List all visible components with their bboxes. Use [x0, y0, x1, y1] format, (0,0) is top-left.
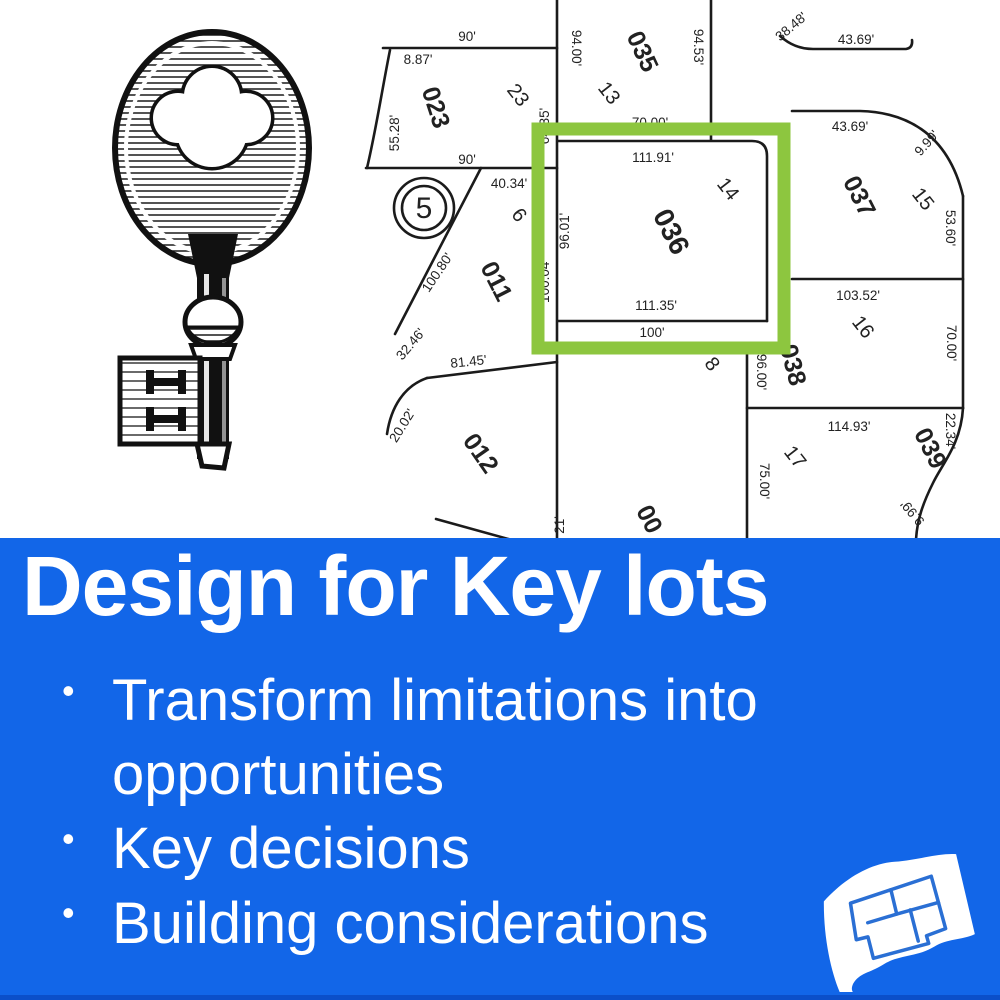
map-label: 100' [639, 325, 664, 340]
key-tip [197, 444, 229, 468]
map-label: 111.91' [632, 150, 674, 165]
map-label: 55.28' [387, 115, 402, 151]
blueprint-map-icon [808, 852, 988, 992]
map-label: 94.53' [691, 29, 706, 65]
map-label: 22.34' [943, 413, 958, 449]
map-label: 43.69' [832, 119, 868, 134]
map-label: 75.00' [757, 463, 772, 499]
map-label: 111.35' [635, 298, 677, 313]
key-neck [188, 234, 238, 278]
map-label: 70.00' [944, 325, 959, 361]
key-bit [120, 358, 200, 444]
map-label: 96.00' [754, 354, 769, 390]
map-label: 90' [458, 29, 476, 44]
map-label: 8.87' [404, 52, 433, 67]
plat-map: 90'8.87'0232355.28'94.00'03594.53'1338.4… [355, 0, 1000, 538]
map-label: 96.01' [557, 213, 572, 249]
top-section: 90'8.87'0232355.28'94.00'03594.53'1338.4… [0, 0, 1000, 538]
blueprint-paper [816, 852, 982, 992]
map-label: 21' [552, 516, 567, 534]
bullet-item: Transform limitations into opportunities [48, 664, 928, 812]
map-label: 5 [416, 192, 433, 225]
key-icon [98, 26, 338, 486]
banner-bottom-edge [0, 995, 1000, 1000]
bullet-list: Transform limitations into opportunities… [48, 664, 928, 961]
slide-title: Design for Key lots [22, 544, 768, 628]
map-label: 103.52' [836, 288, 880, 303]
map-label: 43.69' [838, 32, 874, 47]
map-label: 114.93' [828, 419, 871, 434]
slide-canvas: 90'8.87'0232355.28'94.00'03594.53'1338.4… [0, 0, 1000, 1000]
map-label: 90' [458, 152, 476, 167]
bullet-item: Key decisions [48, 812, 928, 886]
bullet-item: Building considerations [48, 887, 928, 961]
map-label: 40.34' [491, 176, 527, 191]
map-label: 94.00' [569, 30, 584, 66]
map-label: 53.60' [943, 210, 958, 246]
